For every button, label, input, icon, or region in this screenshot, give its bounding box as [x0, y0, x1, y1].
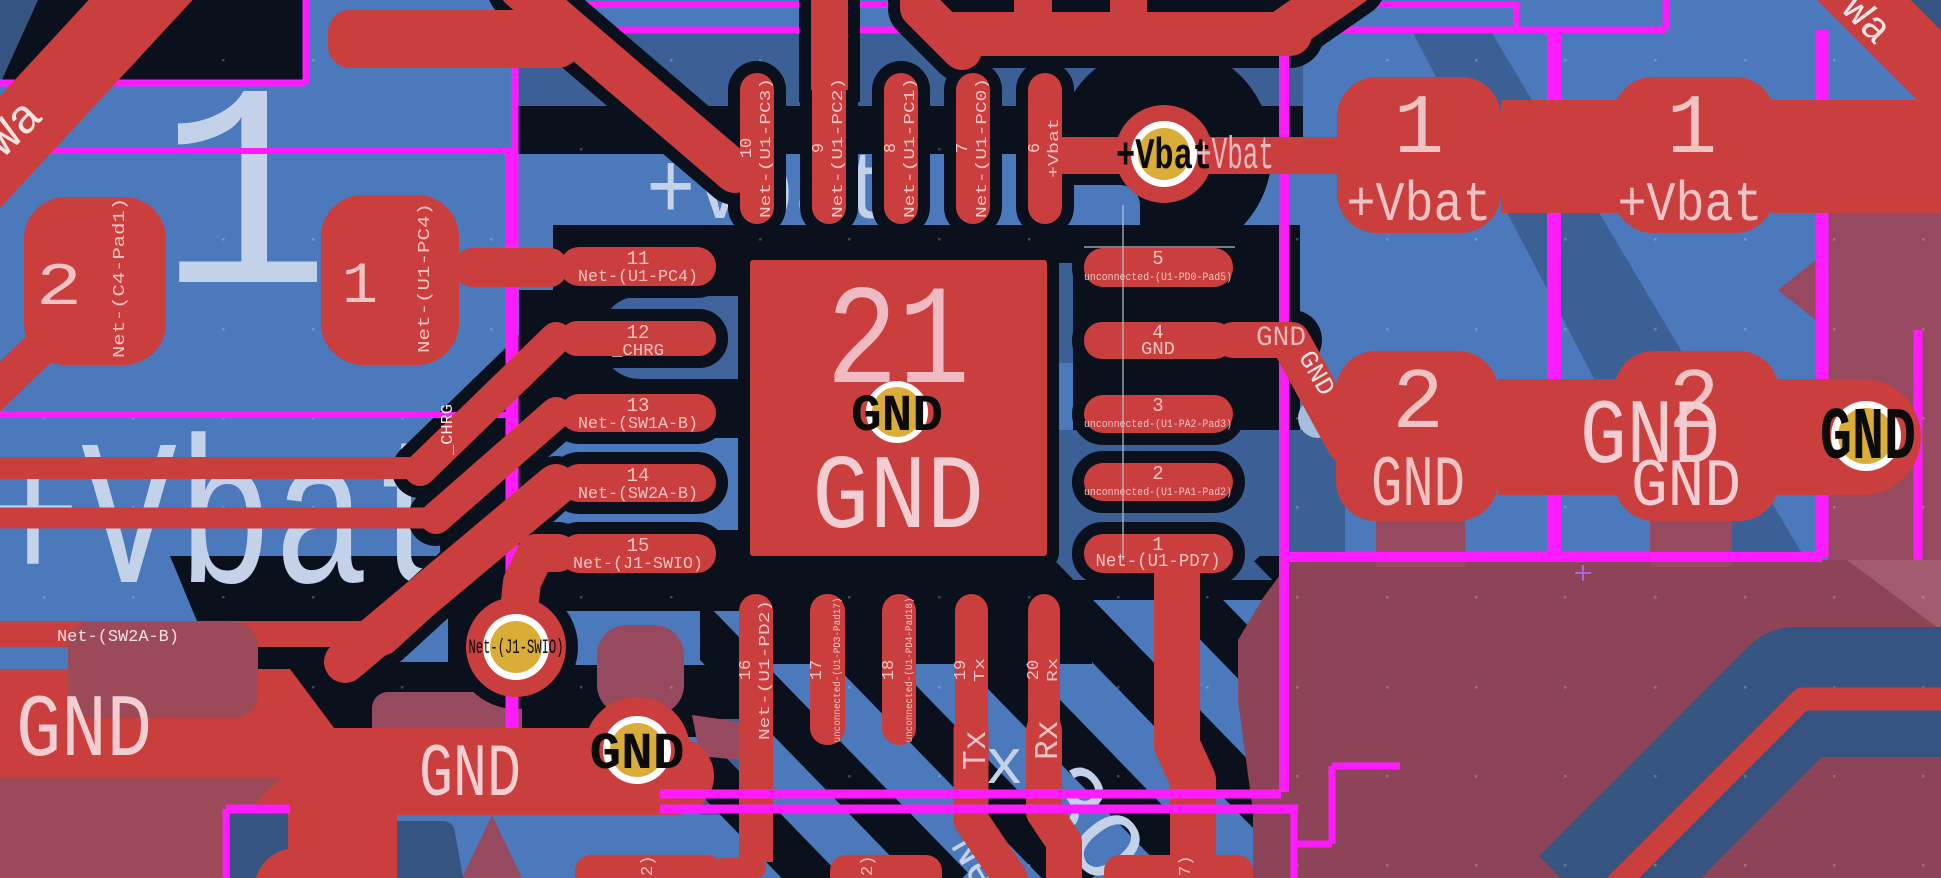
svg-text:GND: GND — [419, 733, 521, 818]
svg-text:_CHRG: _CHRG — [611, 342, 664, 361]
svg-text:Net-(U1-PC4): Net-(U1-PC4) — [578, 268, 698, 287]
svg-text:unconnected-(U1-PD3-Pad17): unconnected-(U1-PD3-Pad17) — [832, 598, 844, 743]
svg-text:2: 2 — [36, 255, 82, 323]
svg-text:10: 10 — [738, 138, 757, 158]
svg-text:+Vbat: +Vbat — [1618, 173, 1763, 237]
svg-text:2): 2) — [639, 856, 658, 876]
svg-text:Net-(U1-PC2): Net-(U1-PC2) — [830, 78, 847, 218]
svg-text:20: 20 — [1025, 660, 1044, 680]
svg-text:unconnected-(U1-PA2-Pad3): unconnected-(U1-PA2-Pad3) — [1084, 419, 1232, 431]
svg-text:15: 15 — [627, 535, 650, 557]
svg-text:Tx: Tx — [972, 658, 989, 682]
svg-text:GND: GND — [851, 387, 943, 446]
svg-text:1: 1 — [1667, 83, 1717, 178]
svg-text:GND: GND — [16, 681, 152, 782]
svg-text:Net-(U1-PD2): Net-(U1-PD2) — [757, 600, 774, 740]
svg-text:7): 7) — [1177, 856, 1196, 876]
svg-text:GND: GND — [1820, 397, 1916, 481]
svg-text:1: 1 — [157, 42, 331, 370]
svg-text:3: 3 — [1152, 395, 1163, 417]
svg-text:11: 11 — [627, 248, 650, 270]
svg-text:6: 6 — [1026, 143, 1045, 153]
svg-text:GND: GND — [1256, 323, 1306, 354]
svg-text:Tx: Tx — [958, 730, 995, 770]
svg-text:1: 1 — [1394, 83, 1444, 178]
svg-text:13: 13 — [627, 395, 650, 417]
svg-text:GND: GND — [1371, 445, 1465, 527]
svg-text:Rx: Rx — [1030, 720, 1067, 760]
svg-text:2: 2 — [1152, 463, 1163, 485]
svg-text:GND: GND — [1141, 340, 1175, 360]
svg-text:16: 16 — [737, 660, 756, 680]
svg-text:14: 14 — [627, 465, 650, 487]
svg-text:Net-(U1-PC4): Net-(U1-PC4) — [416, 203, 435, 353]
svg-text:Net-(U1-PC3): Net-(U1-PC3) — [758, 78, 775, 218]
svg-text:Net-(J1-SWIO): Net-(J1-SWIO) — [573, 555, 703, 574]
svg-text:8: 8 — [882, 143, 901, 153]
svg-text:GND: GND — [590, 725, 685, 784]
svg-text:Rx: Rx — [1045, 658, 1062, 682]
svg-text:unconnected-(U1-PD4-Pad18): unconnected-(U1-PD4-Pad18) — [904, 598, 916, 743]
svg-text:Net-(SW2A-B): Net-(SW2A-B) — [578, 485, 698, 504]
svg-text:2: 2 — [1392, 355, 1444, 453]
svg-text:5: 5 — [1152, 248, 1163, 270]
svg-text:17: 17 — [808, 660, 827, 680]
svg-text:Net-(U1-PD7): Net-(U1-PD7) — [1096, 552, 1221, 572]
svg-text:GND: GND — [1631, 449, 1741, 526]
svg-text:1: 1 — [342, 255, 378, 320]
svg-text:unconnected-(U1-PD0-Pad5): unconnected-(U1-PD0-Pad5) — [1084, 272, 1232, 284]
svg-text:Net-(J1-SWIO): Net-(J1-SWIO) — [469, 637, 564, 660]
svg-text:2): 2) — [859, 856, 878, 876]
svg-text:7: 7 — [954, 143, 973, 153]
svg-text:12: 12 — [627, 322, 650, 344]
svg-text:Net-(C4-Pad1): Net-(C4-Pad1) — [111, 198, 130, 358]
svg-text:Net-(SW1A-B): Net-(SW1A-B) — [578, 415, 698, 434]
svg-text:+Vbat: +Vbat — [1196, 131, 1274, 182]
svg-text:18: 18 — [880, 660, 899, 680]
svg-text:+Vbat: +Vbat — [1347, 173, 1492, 237]
svg-text:+Vbat: +Vbat — [1046, 118, 1063, 178]
svg-text:GND: GND — [812, 439, 984, 559]
svg-text:unconnected-(U1-PA1-Pad2): unconnected-(U1-PA1-Pad2) — [1084, 487, 1232, 499]
svg-text:9: 9 — [810, 143, 829, 153]
svg-text:Net-(U1-PC0): Net-(U1-PC0) — [974, 78, 991, 218]
svg-text:Net-(U1-PC1): Net-(U1-PC1) — [902, 78, 919, 218]
svg-text:Net-(SW2A-B): Net-(SW2A-B) — [57, 628, 179, 647]
svg-text:_CHRG: _CHRG — [439, 404, 458, 456]
svg-text:19: 19 — [952, 660, 971, 680]
